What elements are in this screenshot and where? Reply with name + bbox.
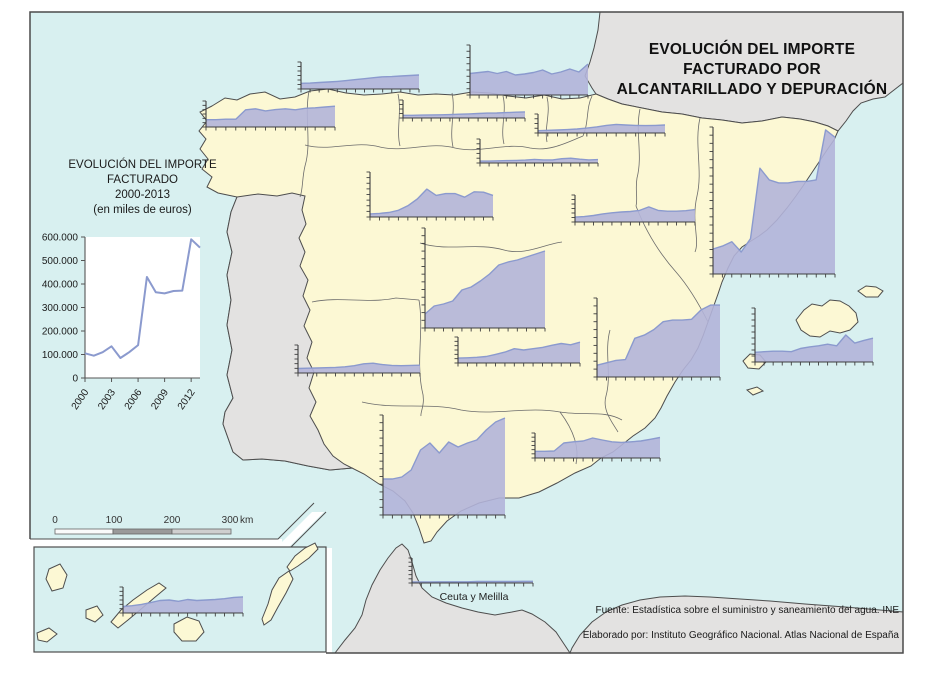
scale-label-200: 200 [152, 515, 192, 526]
legend-chart: 600.000500.000400.000300.000200.000100.0… [30, 228, 235, 418]
legend-title-line3: 2000-2013 [40, 188, 245, 203]
svg-text:2012: 2012 [176, 387, 198, 412]
scale-unit-label: km [240, 515, 270, 526]
legend-title-line1: EVOLUCIÓN DEL IMPORTE [40, 158, 245, 173]
svg-text:100.000: 100.000 [42, 350, 79, 361]
svg-text:200.000: 200.000 [42, 327, 79, 338]
svg-text:2009: 2009 [149, 387, 171, 412]
scale-bar [55, 529, 231, 534]
svg-text:300.000: 300.000 [42, 303, 79, 314]
svg-text:600.000: 600.000 [42, 233, 79, 244]
svg-text:400.000: 400.000 [42, 280, 79, 291]
map-title-line2: FACTURADO POR [603, 60, 901, 80]
map-title: EVOLUCIÓN DEL IMPORTE FACTURADO POR ALCA… [603, 40, 901, 100]
legend-title-line4: (en miles de euros) [40, 203, 245, 218]
svg-text:2003: 2003 [96, 387, 118, 412]
scale-label-100: 100 [94, 515, 134, 526]
scale-label-0: 0 [35, 515, 75, 526]
legend-title-line2: FACTURADO [40, 173, 245, 188]
svg-text:0: 0 [72, 374, 78, 385]
legend-title: EVOLUCIÓN DEL IMPORTE FACTURADO 2000-201… [40, 158, 245, 218]
credit-elaboration: Elaborado por: Instituto Geográfico Naci… [379, 630, 899, 641]
ceuta-melilla-label: Ceuta y Melilla [418, 591, 530, 603]
svg-text:2006: 2006 [123, 387, 145, 412]
map-title-line3: ALCANTARILLADO Y DEPURACIÓN [603, 80, 901, 100]
svg-text:500.000: 500.000 [42, 256, 79, 267]
credit-source: Fuente: Estadística sobre el suministro … [379, 605, 899, 616]
map-title-line1: EVOLUCIÓN DEL IMPORTE [603, 40, 901, 60]
map-page: EVOLUCIÓN DEL IMPORTE FACTURADO POR ALCA… [0, 0, 933, 685]
svg-text:2000: 2000 [70, 387, 92, 412]
